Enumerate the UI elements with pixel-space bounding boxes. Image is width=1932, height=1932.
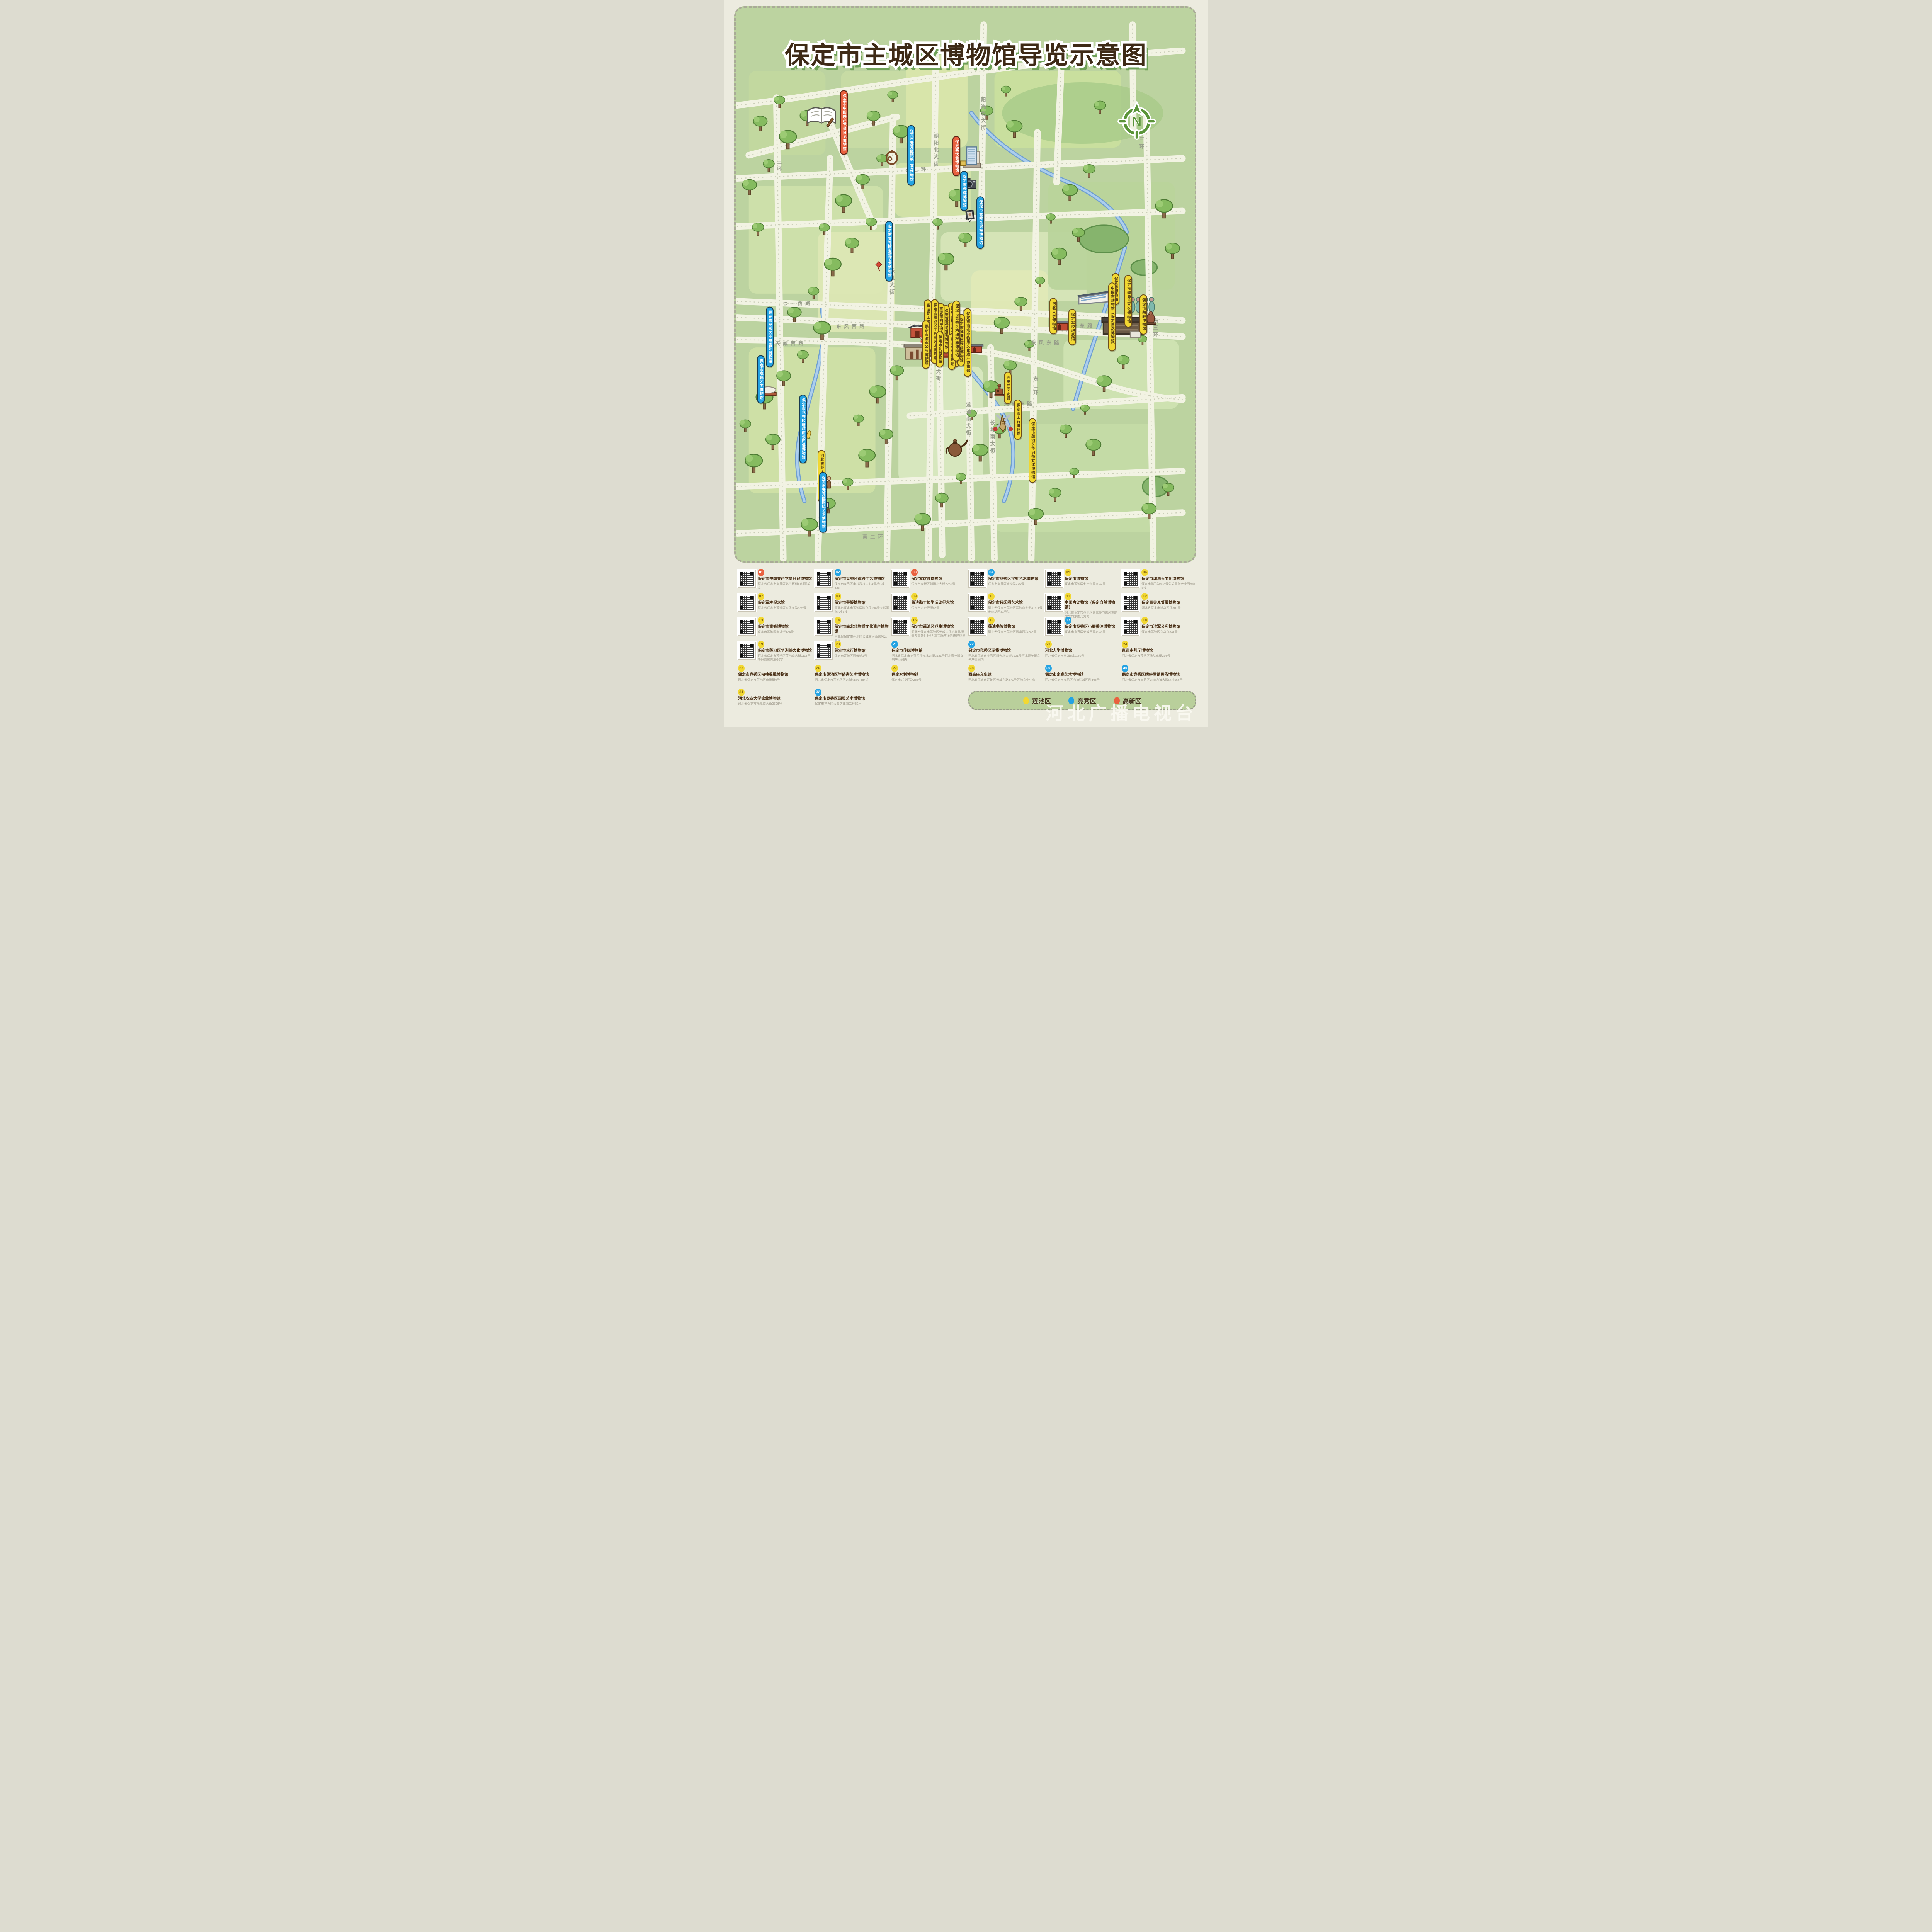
museum-name: 保定市竞秀区镔铁工艺博物馆	[835, 577, 889, 582]
qr-code	[968, 618, 986, 636]
museum-number-badge: 06	[1141, 569, 1148, 576]
legend-entry: 18 保定市淮军公所博物馆 保定市莲池区兴华路331号	[1122, 617, 1196, 641]
museum-number-badge: 32	[815, 689, 821, 696]
museum-name: 河北农业大学农业博物馆	[738, 697, 782, 701]
qr-code	[815, 594, 833, 612]
museum-name: 保定市博物馆	[1065, 577, 1106, 582]
map-marker-23: 河北大学博物馆	[1049, 298, 1057, 334]
qr-code	[815, 570, 833, 588]
museum-number-badge: 07	[758, 593, 764, 600]
landmark-darkhall-icon	[1100, 303, 1145, 343]
museum-number-badge: 30	[1122, 665, 1128, 672]
museum-name: 中国古动物馆（保定自然博物馆）	[1065, 601, 1120, 610]
street-label: 三环	[776, 159, 783, 173]
legend-entry: 19 保定市莲池区华洲茶文化博物馆 河北省保定市莲池区莲池南大街1116号华洲茶…	[738, 641, 813, 665]
museum-address: 保定市莲池区翔云街1号	[835, 654, 867, 658]
museum-address: 河北省保定市竞秀区店镇江城西队666号	[1045, 678, 1100, 682]
museum-number-badge: 04	[988, 569, 995, 576]
map-marker-29: 保定市定瓷艺术博物馆	[757, 355, 765, 404]
museum-name: 直隶审判厅博物馆	[1122, 649, 1170, 653]
street-label: 南二环	[862, 533, 886, 540]
map-marker-08: 保定市荣毅博物馆	[1139, 294, 1147, 335]
legend-entry: 21 保定市传媒博物馆 河北省保定市竞秀区阳光北大街2121号河北青年报文创产业…	[891, 641, 966, 665]
museum-name: 保定市竞秀区柏魂根雕博物馆	[738, 673, 788, 677]
museum-address: 保定市竞秀区吉槐路275号	[988, 582, 1038, 586]
museum-name: 保定水利博物馆	[891, 673, 921, 677]
museum-number-badge: 15	[911, 617, 918, 624]
museum-name: 莲池书院博物馆	[988, 625, 1036, 629]
museum-number-badge: 17	[1065, 617, 1071, 624]
museum-number-badge: 09	[911, 593, 918, 600]
landmark-teapot-icon	[942, 435, 970, 460]
legend-entry: 05 保定市博物馆 保定市莲池区七一东路1032号	[1045, 569, 1120, 593]
landmark-iron-icon	[882, 149, 902, 167]
museum-number-badge: 22	[968, 641, 975, 648]
museum-number-badge: 12	[1141, 593, 1148, 600]
qr-code	[1045, 594, 1063, 612]
museum-name: 保定市秋闲阁艺术馆	[988, 601, 1043, 605]
museum-address: 河北省保定市莲池区莲池南大街316-1号枣尔胡同31号院	[988, 606, 1043, 614]
museum-address: 保定市腾飞路998号荣毅国际产业园A座5楼	[1141, 582, 1196, 590]
legend-entry: 03 保定宴饮食博物馆 保定市高新区朝阳北大街2239号	[891, 569, 966, 593]
qr-code	[1045, 618, 1063, 636]
legend-entry: 29 保定市定瓷艺术博物馆 河北省保定市竞秀区店镇江城西队666号	[1045, 665, 1120, 689]
qr-code	[891, 570, 909, 588]
map-marker-20: 保定市太行博物馆	[1014, 400, 1022, 440]
museum-address: 保定市莲池区兴华路331号	[1141, 630, 1180, 634]
map-marker-02: 保定市竞秀区镔铁工艺博物馆	[907, 125, 915, 186]
museum-number-badge: 26	[815, 665, 821, 672]
street-label: 东风东路	[1031, 339, 1062, 346]
map-marker-11: 中国古动物馆（保定自然博物馆）	[1108, 282, 1116, 351]
museum-number-badge: 25	[738, 665, 745, 672]
museum-number-badge: 27	[891, 665, 898, 672]
museum-name: 保定市竞秀区宝虹艺术博物馆	[988, 577, 1038, 582]
museum-address: 保定市金台驿街86号	[911, 606, 954, 610]
map-marker-18: 保定市淮军公所博物馆	[922, 321, 930, 369]
street-label: 莲池南大街	[965, 402, 972, 437]
museum-number-badge: 23	[1045, 641, 1052, 648]
street-label: 七一西路	[782, 299, 813, 307]
museum-number-badge: 14	[835, 617, 841, 624]
map-marker-07: 保定军校纪念馆	[1068, 309, 1076, 345]
legend-entry: 20 保定市太行博物馆 保定市莲池区翔云街1号	[815, 641, 889, 665]
museum-address: 保定市竞秀区电谷科技中心4号楼C座323	[835, 582, 889, 590]
legend-entry: 27 保定水利博物馆 保定市兴华西路283号	[891, 665, 966, 689]
museum-number-badge: 08	[835, 593, 841, 600]
map-marker-22: 保定市竞秀区泥模博物馆	[976, 196, 984, 249]
legend-entry: 15 保定市莲池区戏曲博物馆 河北省保定市莲池区天威中路裕华路街道办事处6-8号…	[891, 617, 966, 641]
museum-address: 河北省保定市莲池区腾飞路998号荣毅国际A座5楼	[835, 606, 889, 614]
map-marker-01: 保定市中国共产党员日记博物馆	[840, 90, 848, 155]
legend-entry: 09 留法勤工俭学运动纪念馆 保定市金台驿街86号	[891, 593, 966, 617]
legend-entry: 22 保定市竞秀区泥模博物馆 河北省保定市竞秀区阳光北大街2121号河北青年报文…	[968, 641, 1043, 665]
museum-name: 保定市淮军公所博物馆	[1141, 625, 1180, 629]
street-label: 东二环	[1032, 376, 1039, 397]
museum-name: 保定市莲池区戏曲博物馆	[911, 625, 966, 629]
museum-address: 河北省保定市五四东路180号	[1045, 654, 1084, 658]
museum-address: 河北省保定市竞秀区大激店镇大激店村556号	[1122, 678, 1182, 682]
museum-number-badge: 02	[835, 569, 841, 576]
landmark-tower-icon	[957, 145, 985, 170]
map-marker-14: 保定市南北非物质文化遗产博物馆	[964, 308, 971, 377]
legend-entry: 11 中国古动物馆（保定自然博物馆） 河北省保定市莲池区东三环与东风东路交叉口东…	[1045, 593, 1120, 617]
qr-code	[891, 618, 909, 636]
map-marker-25: 保定市竞秀区柏魂根雕博物馆	[952, 301, 960, 361]
museum-number-badge: 20	[835, 641, 841, 648]
qr-code	[1122, 618, 1139, 636]
map-marker-17: 保定市竞秀区小磨香油博物馆	[766, 307, 774, 367]
museum-name: 保定直隶总督署博物馆	[1141, 601, 1180, 605]
museum-address: 保定市高新区朝阳北大街2239号	[911, 582, 955, 586]
map-marker-28: 西高庄文史馆	[1004, 372, 1012, 404]
qr-code	[738, 642, 756, 660]
museum-number-badge: 05	[1065, 569, 1071, 576]
map-marker-21: 保定市传媒博物馆	[960, 171, 968, 211]
street-label: 东风西路	[836, 323, 867, 330]
legend-entry: 01 保定市中国共产党员日记博物馆 河北省保定市竞秀区北三环道口村同美家	[738, 569, 813, 593]
museum-number-badge: 11	[1065, 593, 1071, 600]
museum-name: 保定市璞源玉文化博物馆	[1141, 577, 1196, 582]
map-marker-04: 保定市竞秀区宝虹艺术博物馆	[885, 221, 893, 282]
museum-number-badge: 18	[1141, 617, 1148, 624]
qr-code	[738, 594, 756, 612]
legend-entry: 16 莲池书院博物馆 河北省保定市莲池区裕华西路246号	[968, 617, 1043, 641]
legend-entry: 32 保定市竞秀区国弘艺术博物馆 保定市竞秀区大激店镇南二环62号	[815, 689, 889, 713]
museum-address: 河北省保定市莲池区法院东街236号	[1122, 654, 1170, 658]
museum-number-badge: 31	[738, 689, 745, 696]
street-label: 朝阳北大街	[932, 133, 940, 168]
poster-page: N 三环三环东三环北二环朝阳北大街阳光北大街七一西路七一中路七一东路东风西路东风…	[724, 0, 1208, 727]
qr-code	[815, 642, 833, 660]
museum-name: 保定市莲池区半俗斋艺术博物馆	[815, 673, 869, 677]
museum-number-badge: 10	[988, 593, 995, 600]
map-marker-27: 保定水利博物馆	[936, 331, 944, 367]
qr-code	[968, 570, 986, 588]
museum-number-badge: 21	[891, 641, 898, 648]
museum-name: 保定市定瓷艺术博物馆	[1045, 673, 1100, 677]
qr-code	[815, 618, 833, 636]
legend-entry: 31 河北农业大学农业博物馆 河北省保定市乐凯南大街2596号	[738, 689, 813, 713]
museum-address: 河北省保定市裕华西路301号	[1141, 606, 1180, 610]
museum-name: 河北大学博物馆	[1045, 649, 1084, 653]
legend-entry: 14 保定市南北非物质文化遗产博物馆 河北省保定市莲池区长城南大街东风公园内	[815, 617, 889, 641]
museum-name: 保定市南北非物质文化遗产博物馆	[835, 625, 889, 634]
museum-legend: 01 保定市中国共产党员日记博物馆 河北省保定市竞秀区北三环道口村同美家 02 …	[738, 569, 1196, 713]
legend-entry: 04 保定市竞秀区宝虹艺术博物馆 保定市竞秀区吉槐路275号	[968, 569, 1043, 593]
museum-name: 保定宴饮食博物馆	[911, 577, 955, 582]
legend-entry: 24 直隶审判厅博物馆 河北省保定市莲池区法院东街236号	[1122, 641, 1196, 665]
qr-code	[1122, 570, 1139, 588]
qr-code	[1122, 594, 1139, 612]
qr-code	[738, 618, 756, 636]
legend-entry: 07 保定军校纪念馆 河北省保定市莲池区东风东路585号	[738, 593, 813, 617]
museum-number-badge: 29	[1045, 665, 1052, 672]
legend-entry: 17 保定市竞秀区小磨香油博物馆 保定市竞秀区天威西路4935号	[1045, 617, 1120, 641]
map-marker-06: 保定市璞源玉文化博物馆	[1124, 275, 1132, 327]
street-label: 天威西路	[775, 340, 806, 347]
street-label: 阳光北大街	[980, 97, 987, 132]
museum-name: 保定市蜜蜂博物馆	[758, 625, 794, 629]
map-marker-19: 保定市莲池区华洲茶文化博物馆	[1029, 418, 1036, 483]
north-compass-icon	[1117, 100, 1157, 140]
museum-number-badge: 24	[1122, 641, 1128, 648]
museum-name: 西高庄文史馆	[968, 673, 1035, 677]
museum-number-badge: 16	[988, 617, 995, 624]
museum-number-badge: 13	[758, 617, 764, 624]
legend-entry: 12 保定直隶总督署博物馆 河北省保定市裕华西路301号	[1122, 593, 1196, 617]
legend-entry: 26 保定市莲池区半俗斋艺术博物馆 河北省保定市莲池区西大街XB01-6商铺	[815, 665, 889, 689]
legend-entry: 30 保定市竞秀区晴耕雨读民俗博物馆 河北省保定市竞秀区大激店镇大激店村556号	[1122, 665, 1196, 689]
legend-entry: 02 保定市竞秀区镔铁工艺博物馆 保定市竞秀区电谷科技中心4号楼C座323	[815, 569, 889, 593]
landmark-knot-icon	[871, 259, 886, 273]
museum-name: 保定军校纪念馆	[758, 601, 806, 605]
map-marker-32: 保定市竞秀区国弘艺术博物馆	[819, 472, 827, 533]
museum-address: 保定市莲池区商场街124号	[758, 630, 794, 634]
museum-name: 保定市荣毅博物馆	[835, 601, 889, 605]
museum-number-badge: 28	[968, 665, 975, 672]
district-color-dot	[1023, 697, 1029, 704]
legend-entry: 23 河北大学博物馆 河北省保定市五四东路180号	[1045, 641, 1120, 665]
broadcaster-watermark: 河北广播电视台	[1046, 699, 1197, 725]
museum-address: 河北省保定市莲池区莲池南大街1116号华洲茶城内2050室	[758, 654, 813, 662]
museum-name: 保定市传媒博物馆	[891, 649, 966, 653]
landmark-swords-icon	[990, 411, 1016, 434]
landmark-book-icon	[805, 101, 838, 131]
legend-entry: 08 保定市荣毅博物馆 河北省保定市莲池区腾飞路998号荣毅国际A座5楼	[815, 593, 889, 617]
museum-address: 保定市兴华西路283号	[891, 678, 921, 682]
museum-address: 河北省保定市竞秀区阳光北大街2121号河北青年报文创产业园内	[891, 654, 966, 662]
legend-entry: 28 西高庄文史馆 河北省保定市莲池区天威东路371号莲池文化中心	[968, 665, 1043, 689]
legend-entry: 13 保定市蜜蜂博物馆 保定市莲池区商场街124号	[738, 617, 813, 641]
museum-address: 河北省保定市莲池区天威中路裕华路街道办事处6-8号力高古玩市场内曹锟戏楼	[911, 630, 966, 638]
museum-name: 保定市竞秀区晴耕雨读民俗博物馆	[1122, 673, 1182, 677]
qr-code	[1045, 570, 1063, 588]
museum-name: 保定市竞秀区小磨香油博物馆	[1065, 625, 1115, 629]
museum-number-badge: 19	[758, 641, 764, 648]
map-marker-03: 保定宴饮食博物馆	[952, 136, 960, 176]
legend-entry: 10 保定市秋闲阁艺术馆 河北省保定市莲池区莲池南大街316-1号枣尔胡同31号…	[968, 593, 1043, 617]
museum-address: 河北省保定市竞秀区阳光北大街2121号河北青年报文创产业园内	[968, 654, 1043, 662]
museum-address: 保定市竞秀区天威西路4935号	[1065, 630, 1115, 634]
museum-address: 河北省保定市莲池区西大街XB01-6商铺	[815, 678, 869, 682]
map-marker-30: 保定市竞秀区晴耕雨读民俗博物馆	[799, 395, 807, 463]
museum-address: 河北省保定市莲池区东风东路585号	[758, 606, 806, 610]
museum-name: 保定市竞秀区国弘艺术博物馆	[815, 697, 865, 701]
qr-code	[738, 570, 756, 588]
museum-address: 河北省保定市莲池区裕华西路246号	[988, 630, 1036, 634]
museum-name: 保定市太行博物馆	[835, 649, 867, 653]
museum-name: 保定市竞秀区泥模博物馆	[968, 649, 1043, 653]
legend-entry: 25 保定市竞秀区柏魂根雕博物馆 河北省保定市莲池区商场街6号	[738, 665, 813, 689]
museum-address: 河北省保定市莲池区天威东路371号莲池文化中心	[968, 678, 1035, 682]
museum-address: 保定市莲池区七一东路1032号	[1065, 582, 1106, 586]
museum-name: 保定市中国共产党员日记博物馆	[758, 577, 813, 582]
museum-address: 保定市竞秀区大激店镇南二环62号	[815, 702, 865, 706]
qr-code	[891, 594, 909, 612]
legend-entry: 06 保定市璞源玉文化博物馆 保定市腾飞路998号荣毅国际产业园A座5楼	[1122, 569, 1196, 593]
museum-name: 留法勤工俭学运动纪念馆	[911, 601, 954, 605]
museum-number-badge: 03	[911, 569, 918, 576]
museum-name: 保定市莲池区华洲茶文化博物馆	[758, 649, 813, 653]
museum-address: 河北省保定市乐凯南大街2596号	[738, 702, 782, 706]
museum-number-badge: 01	[758, 569, 764, 576]
qr-code	[968, 594, 986, 612]
museum-address: 河北省保定市竞秀区北三环道口村同美家	[758, 582, 813, 590]
museum-address: 河北省保定市莲池区商场街6号	[738, 678, 788, 682]
